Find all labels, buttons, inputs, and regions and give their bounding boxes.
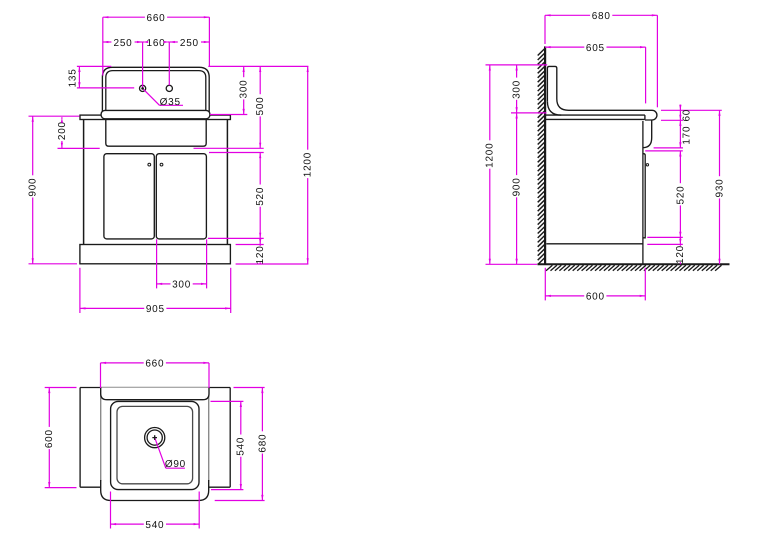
svg-text:135: 135 bbox=[68, 68, 79, 87]
svg-text:900: 900 bbox=[512, 177, 523, 196]
svg-text:300: 300 bbox=[239, 80, 250, 99]
svg-text:300: 300 bbox=[511, 80, 522, 99]
svg-text:680: 680 bbox=[257, 434, 268, 453]
svg-text:930: 930 bbox=[714, 179, 725, 198]
svg-text:Ø90: Ø90 bbox=[165, 459, 186, 470]
svg-text:680: 680 bbox=[592, 11, 611, 22]
svg-text:900: 900 bbox=[28, 178, 39, 197]
svg-text:520: 520 bbox=[675, 186, 686, 205]
svg-text:605: 605 bbox=[586, 43, 605, 54]
svg-text:200: 200 bbox=[57, 121, 68, 140]
svg-text:600: 600 bbox=[44, 429, 55, 448]
svg-text:1200: 1200 bbox=[485, 143, 496, 168]
svg-text:250: 250 bbox=[180, 38, 199, 49]
svg-text:660: 660 bbox=[147, 13, 166, 24]
svg-text:1200: 1200 bbox=[303, 152, 314, 177]
svg-text:60: 60 bbox=[682, 109, 693, 122]
svg-text:600: 600 bbox=[586, 292, 605, 303]
svg-text:905: 905 bbox=[146, 304, 165, 315]
svg-text:120: 120 bbox=[255, 245, 266, 264]
svg-text:500: 500 bbox=[255, 97, 266, 116]
svg-text:660: 660 bbox=[145, 359, 164, 370]
svg-text:250: 250 bbox=[114, 38, 133, 49]
svg-text:120: 120 bbox=[675, 245, 686, 264]
svg-text:540: 540 bbox=[145, 520, 164, 531]
svg-text:160: 160 bbox=[147, 38, 166, 49]
svg-text:540: 540 bbox=[236, 437, 247, 456]
svg-text:520: 520 bbox=[255, 187, 266, 206]
svg-text:170: 170 bbox=[681, 126, 692, 145]
svg-text:Ø35: Ø35 bbox=[160, 97, 181, 108]
svg-text:300: 300 bbox=[172, 280, 191, 291]
